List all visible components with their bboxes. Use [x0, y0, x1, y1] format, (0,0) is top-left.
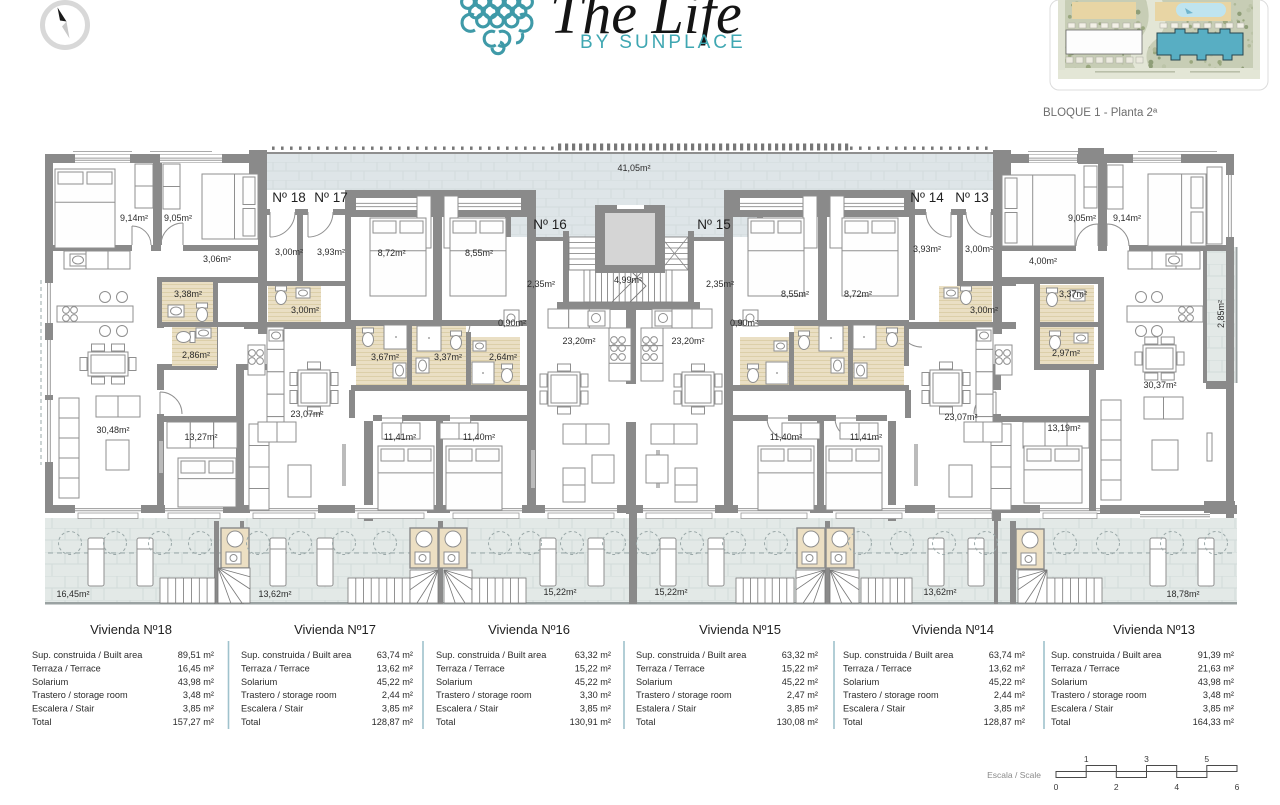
svg-text:11,41m²: 11,41m² — [850, 432, 882, 442]
svg-text:Sup. construida / Built area: Sup. construida / Built area — [843, 650, 954, 660]
svg-text:23,07m²: 23,07m² — [944, 412, 977, 422]
svg-text:13,27m²: 13,27m² — [184, 432, 217, 442]
svg-text:41,05m²: 41,05m² — [617, 163, 650, 173]
svg-text:8,72m²: 8,72m² — [844, 289, 872, 299]
svg-text:164,33 m²: 164,33 m² — [1193, 717, 1234, 727]
svg-text:3,85 m²: 3,85 m² — [787, 704, 818, 714]
svg-text:3,30 m²: 3,30 m² — [580, 690, 611, 700]
svg-text:23,20m²: 23,20m² — [562, 336, 595, 346]
svg-text:15,22m²: 15,22m² — [654, 587, 687, 597]
svg-text:Vivienda Nº17: Vivienda Nº17 — [294, 622, 376, 637]
svg-text:Total: Total — [32, 717, 51, 727]
svg-text:15,22 m²: 15,22 m² — [782, 663, 818, 673]
svg-text:BLOQUE 1 - Planta 2ª: BLOQUE 1 - Planta 2ª — [1043, 107, 1158, 119]
svg-text:Total: Total — [843, 717, 862, 727]
svg-text:16,45m²: 16,45m² — [56, 589, 89, 599]
svg-text:Total: Total — [241, 717, 260, 727]
svg-text:11,41m²: 11,41m² — [384, 432, 416, 442]
svg-text:Total: Total — [636, 717, 655, 727]
svg-text:Solarium: Solarium — [1051, 677, 1088, 687]
svg-text:2,47 m²: 2,47 m² — [787, 690, 818, 700]
svg-text:30,37m²: 30,37m² — [1143, 380, 1176, 390]
svg-text:Nº 17: Nº 17 — [314, 190, 347, 205]
svg-text:2,35m²: 2,35m² — [706, 279, 734, 289]
svg-text:30,48m²: 30,48m² — [96, 425, 129, 435]
svg-text:0,90m²: 0,90m² — [498, 318, 526, 328]
svg-text:3,85 m²: 3,85 m² — [580, 704, 611, 714]
svg-text:2,44 m²: 2,44 m² — [994, 690, 1025, 700]
svg-text:Nº 16: Nº 16 — [533, 217, 566, 232]
svg-text:8,72m²: 8,72m² — [378, 248, 406, 258]
svg-text:2,85m²: 2,85m² — [1216, 300, 1226, 328]
svg-text:3,93m²: 3,93m² — [317, 247, 345, 257]
svg-text:63,74 m²: 63,74 m² — [989, 650, 1025, 660]
svg-text:Solarium: Solarium — [241, 677, 278, 687]
svg-text:Escalera / Stair: Escalera / Stair — [32, 704, 94, 714]
svg-text:11,40m²: 11,40m² — [463, 432, 495, 442]
svg-text:1: 1 — [1084, 754, 1089, 764]
svg-text:45,22 m²: 45,22 m² — [377, 677, 413, 687]
svg-text:Escala / Scale: Escala / Scale — [987, 770, 1041, 780]
svg-text:8,55m²: 8,55m² — [781, 289, 809, 299]
svg-text:63,74 m²: 63,74 m² — [377, 650, 413, 660]
svg-text:3,85 m²: 3,85 m² — [382, 704, 413, 714]
svg-text:Solarium: Solarium — [843, 677, 880, 687]
svg-text:18,78m²: 18,78m² — [1166, 589, 1199, 599]
svg-text:13,62m²: 13,62m² — [923, 587, 956, 597]
svg-text:Vivienda Nº16: Vivienda Nº16 — [488, 622, 570, 637]
svg-text:15,22m²: 15,22m² — [543, 587, 576, 597]
svg-text:0,90m²: 0,90m² — [730, 318, 758, 328]
svg-text:3,00m²: 3,00m² — [291, 305, 319, 315]
svg-text:130,08 m²: 130,08 m² — [777, 717, 818, 727]
svg-text:Terraza / Terrace: Terraza / Terrace — [1051, 663, 1120, 673]
svg-text:6: 6 — [1235, 782, 1240, 792]
svg-text:3,85 m²: 3,85 m² — [994, 704, 1025, 714]
svg-text:3,00m²: 3,00m² — [275, 247, 303, 257]
svg-text:Escalera / Stair: Escalera / Stair — [436, 704, 498, 714]
svg-text:Terraza / Terrace: Terraza / Terrace — [32, 663, 101, 673]
svg-text:3,00m²: 3,00m² — [965, 244, 993, 254]
svg-text:Trastero / storage room: Trastero / storage room — [436, 690, 532, 700]
svg-text:13,62 m²: 13,62 m² — [377, 663, 413, 673]
svg-text:21,63 m²: 21,63 m² — [1198, 663, 1234, 673]
svg-text:63,32 m²: 63,32 m² — [782, 650, 818, 660]
svg-text:9,05m²: 9,05m² — [1068, 213, 1096, 223]
svg-text:3,85 m²: 3,85 m² — [1203, 704, 1234, 714]
svg-text:Terraza / Terrace: Terraza / Terrace — [843, 663, 912, 673]
svg-text:157,27 m²: 157,27 m² — [173, 717, 214, 727]
svg-text:9,14m²: 9,14m² — [120, 213, 148, 223]
svg-text:Terraza / Terrace: Terraza / Terrace — [636, 663, 705, 673]
svg-text:15,22 m²: 15,22 m² — [575, 663, 611, 673]
svg-text:9,14m²: 9,14m² — [1113, 213, 1141, 223]
svg-text:Solarium: Solarium — [32, 677, 69, 687]
svg-text:3,37m²: 3,37m² — [434, 352, 462, 362]
svg-text:Total: Total — [1051, 717, 1070, 727]
svg-text:3: 3 — [1144, 754, 1149, 764]
svg-text:23,07m²: 23,07m² — [290, 409, 323, 419]
svg-text:89,51 m²: 89,51 m² — [178, 650, 214, 660]
svg-text:2,86m²: 2,86m² — [182, 350, 210, 360]
svg-text:91,39 m²: 91,39 m² — [1198, 650, 1234, 660]
svg-text:Solarium: Solarium — [636, 677, 673, 687]
svg-text:43,98 m²: 43,98 m² — [1198, 677, 1234, 687]
svg-text:BY SUNPLACE: BY SUNPLACE — [580, 32, 746, 53]
svg-text:23,20m²: 23,20m² — [671, 336, 704, 346]
svg-text:128,87 m²: 128,87 m² — [984, 717, 1025, 727]
svg-text:3,00m²: 3,00m² — [970, 305, 998, 315]
svg-text:Sup. construida / Built area: Sup. construida / Built area — [1051, 650, 1162, 660]
svg-text:3,37m²: 3,37m² — [1059, 289, 1087, 299]
svg-text:3,85 m²: 3,85 m² — [183, 704, 214, 714]
svg-text:Trastero / storage room: Trastero / storage room — [636, 690, 732, 700]
svg-text:Sup. construida / Built area: Sup. construida / Built area — [636, 650, 747, 660]
svg-text:Solarium: Solarium — [436, 677, 473, 687]
svg-text:Escalera / Stair: Escalera / Stair — [241, 704, 303, 714]
svg-text:Nº 15: Nº 15 — [697, 217, 730, 232]
svg-text:Terraza / Terrace: Terraza / Terrace — [241, 663, 310, 673]
svg-text:3,93m²: 3,93m² — [913, 244, 941, 254]
svg-text:128,87 m²: 128,87 m² — [372, 717, 413, 727]
svg-text:Vivienda Nº14: Vivienda Nº14 — [912, 622, 994, 637]
svg-text:Escalera / Stair: Escalera / Stair — [1051, 704, 1113, 714]
svg-text:Total: Total — [436, 717, 455, 727]
svg-text:2,97m²: 2,97m² — [1052, 348, 1080, 358]
svg-text:2,35m²: 2,35m² — [527, 279, 555, 289]
svg-text:Trastero / storage room: Trastero / storage room — [241, 690, 337, 700]
svg-text:2: 2 — [1114, 782, 1119, 792]
svg-text:Trastero / storage room: Trastero / storage room — [843, 690, 939, 700]
svg-text:8,55m²: 8,55m² — [465, 248, 493, 258]
svg-text:0: 0 — [1054, 782, 1059, 792]
svg-text:3,48 m²: 3,48 m² — [183, 690, 214, 700]
svg-text:Sup. construida / Built area: Sup. construida / Built area — [241, 650, 352, 660]
svg-text:Vivienda Nº15: Vivienda Nº15 — [699, 622, 781, 637]
svg-text:3,67m²: 3,67m² — [371, 352, 399, 362]
svg-text:Estalera / Stair: Estalera / Stair — [636, 704, 696, 714]
svg-text:Vivienda Nº18: Vivienda Nº18 — [90, 622, 172, 637]
svg-text:4,00m²: 4,00m² — [1029, 256, 1057, 266]
svg-text:130,91 m²: 130,91 m² — [570, 717, 611, 727]
svg-text:16,45 m²: 16,45 m² — [178, 663, 214, 673]
svg-text:3,48 m²: 3,48 m² — [1203, 690, 1234, 700]
svg-text:4: 4 — [1174, 782, 1179, 792]
svg-text:13,19m²: 13,19m² — [1047, 423, 1080, 433]
svg-text:2,64m²: 2,64m² — [489, 352, 517, 362]
svg-text:9,05m²: 9,05m² — [164, 213, 192, 223]
svg-text:Vivienda Nº13: Vivienda Nº13 — [1113, 622, 1195, 637]
svg-text:5: 5 — [1204, 754, 1209, 764]
svg-text:45,22 m²: 45,22 m² — [989, 677, 1025, 687]
svg-text:3,06m²: 3,06m² — [203, 254, 231, 264]
svg-text:Sup. construida / Built area: Sup. construida / Built area — [32, 650, 143, 660]
svg-text:4,99m²: 4,99m² — [614, 275, 642, 285]
svg-text:Trastero / storage room: Trastero / storage room — [32, 690, 128, 700]
svg-text:2,44 m²: 2,44 m² — [382, 690, 413, 700]
svg-text:13,62 m²: 13,62 m² — [989, 663, 1025, 673]
svg-text:45,22 m²: 45,22 m² — [575, 677, 611, 687]
svg-text:13,62m²: 13,62m² — [258, 589, 291, 599]
svg-text:3,38m²: 3,38m² — [174, 289, 202, 299]
svg-text:Nº 18: Nº 18 — [272, 190, 305, 205]
svg-text:Nº 13: Nº 13 — [955, 190, 988, 205]
svg-text:Sup. construida / Built area: Sup. construida / Built area — [436, 650, 547, 660]
svg-text:63,32 m²: 63,32 m² — [575, 650, 611, 660]
svg-text:Trastero / storage room: Trastero / storage room — [1051, 690, 1147, 700]
svg-text:45,22 m²: 45,22 m² — [782, 677, 818, 687]
svg-text:Escalera / Stair: Escalera / Stair — [843, 704, 905, 714]
svg-text:Nº 14: Nº 14 — [910, 190, 944, 205]
svg-text:Terraza / Terrace: Terraza / Terrace — [436, 663, 505, 673]
svg-text:11,40m²: 11,40m² — [770, 432, 802, 442]
svg-text:43,98 m²: 43,98 m² — [178, 677, 214, 687]
